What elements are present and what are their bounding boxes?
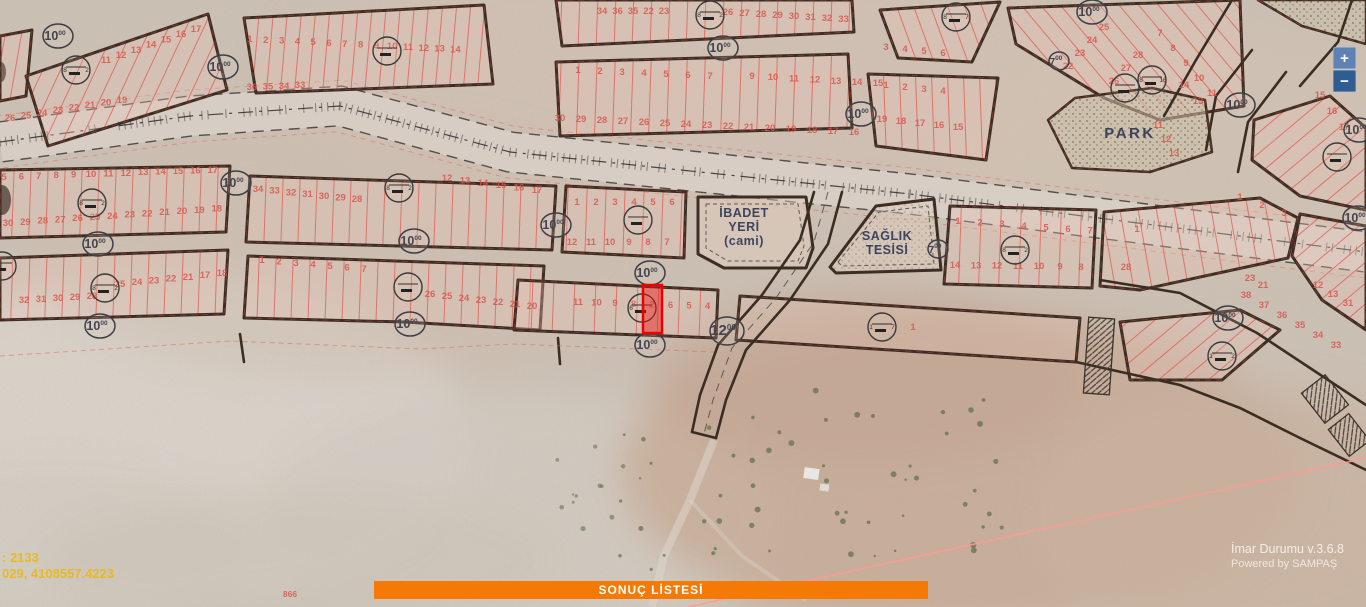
svg-text:24: 24 [37, 108, 48, 119]
powered-by-text: Powered by SAMPAŞ [1231, 557, 1344, 571]
svg-text:5: 5 [1, 172, 7, 183]
svg-text:1: 1 [1209, 353, 1213, 360]
svg-text:5: 5 [311, 37, 317, 48]
svg-text:2: 2 [593, 197, 598, 208]
svg-text:28: 28 [756, 9, 767, 20]
svg-text:31: 31 [36, 294, 47, 305]
svg-text:10: 10 [591, 298, 602, 309]
svg-text:1: 1 [1237, 192, 1243, 203]
svg-text:16: 16 [934, 120, 945, 131]
svg-text:25: 25 [442, 291, 453, 302]
svg-text:23: 23 [476, 295, 487, 306]
svg-text:5: 5 [650, 197, 656, 208]
svg-text:38: 38 [1241, 290, 1252, 301]
svg-text:34: 34 [1313, 330, 1324, 341]
svg-text:10: 10 [768, 72, 779, 83]
svg-text:13: 13 [831, 76, 842, 87]
svg-text:30: 30 [555, 113, 566, 124]
svg-text:17: 17 [208, 165, 219, 176]
svg-text:8: 8 [92, 285, 96, 292]
svg-text:8: 8 [943, 14, 947, 21]
svg-text:16: 16 [849, 127, 860, 138]
road-width-marker: 1000 [83, 232, 113, 256]
svg-text:29: 29 [576, 114, 587, 125]
svg-text:24: 24 [1087, 35, 1098, 46]
svg-text:12: 12 [992, 261, 1003, 272]
svg-text:33: 33 [838, 14, 849, 25]
road-width-marker: 1000 [221, 171, 251, 195]
svg-text:35: 35 [1295, 320, 1306, 331]
block-symbol: 82 [385, 174, 413, 202]
svg-text:9: 9 [612, 298, 617, 309]
svg-text:16: 16 [1159, 77, 1167, 84]
svg-text:31: 31 [302, 189, 313, 200]
svg-text:37: 37 [1259, 300, 1270, 311]
svg-text:6: 6 [668, 300, 673, 311]
road-width-marker: 1000 [1343, 206, 1366, 230]
svg-text:30: 30 [3, 218, 14, 229]
svg-text:3: 3 [612, 197, 617, 208]
svg-text:14: 14 [1179, 80, 1190, 91]
block-symbol: 82 [62, 56, 90, 84]
svg-text:11: 11 [789, 73, 800, 84]
svg-text:34: 34 [597, 6, 608, 17]
svg-text:6: 6 [344, 263, 349, 274]
svg-text:8: 8 [1002, 247, 1006, 254]
block-symbol: 82 [78, 189, 106, 217]
svg-text:30: 30 [53, 293, 64, 304]
svg-text:8: 8 [645, 237, 650, 248]
svg-text:8: 8 [63, 67, 67, 74]
svg-text:8: 8 [1170, 43, 1175, 54]
svg-text:21: 21 [744, 122, 755, 133]
road-width-marker: 700 [1049, 52, 1069, 70]
svg-text:16: 16 [1327, 106, 1338, 117]
road-width-marker: 1000 [43, 24, 73, 48]
block-symbol: 17 [868, 313, 896, 341]
road-width-marker: 1000 [635, 333, 665, 357]
svg-text:12: 12 [1313, 280, 1324, 291]
block-symbol: 82 [1001, 236, 1029, 264]
svg-text:29: 29 [772, 10, 783, 21]
svg-text:11: 11 [403, 42, 414, 53]
svg-text:36: 36 [247, 82, 258, 93]
svg-text:9: 9 [71, 170, 76, 181]
highlighted-parcel[interactable] [643, 285, 662, 333]
svg-text:4: 4 [310, 260, 316, 271]
svg-text:21: 21 [1258, 280, 1269, 291]
coordinate-line-2: 029, 4108557.4223 [2, 566, 114, 582]
block-symbol [624, 206, 652, 234]
svg-text:14: 14 [450, 44, 461, 55]
svg-text:23: 23 [149, 275, 160, 286]
svg-text:36: 36 [612, 6, 623, 17]
block-symbol [394, 273, 422, 301]
svg-text:2: 2 [902, 82, 907, 93]
svg-text:11: 11 [586, 237, 597, 248]
zoom-control: + − [1333, 47, 1356, 92]
road-width-marker: 1000 [395, 312, 425, 336]
svg-text:24: 24 [132, 277, 143, 288]
svg-text:24: 24 [459, 293, 470, 304]
svg-text:20: 20 [765, 123, 776, 134]
svg-text:7: 7 [1157, 28, 1162, 39]
svg-text:6: 6 [629, 305, 633, 312]
block-symbol: 87 [942, 3, 970, 31]
svg-text:1: 1 [574, 197, 580, 208]
svg-text:30: 30 [789, 11, 800, 22]
coordinate-line-1: : 2133 [2, 550, 114, 566]
svg-text:3: 3 [619, 67, 624, 78]
svg-text:29: 29 [70, 292, 81, 303]
svg-text:20: 20 [177, 206, 188, 217]
svg-text:866: 866 [283, 589, 297, 599]
svg-text:11: 11 [103, 168, 114, 179]
svg-text:20: 20 [101, 97, 112, 108]
block-symbol [1323, 143, 1351, 171]
svg-text:23: 23 [1245, 273, 1256, 284]
svg-text:15: 15 [873, 78, 884, 89]
svg-text:17: 17 [828, 126, 839, 137]
svg-text:1: 1 [259, 255, 265, 266]
svg-text:8: 8 [1078, 262, 1083, 273]
road-width-marker: 1000 [1225, 93, 1255, 117]
svg-text:12: 12 [567, 237, 578, 248]
road-width-marker: 1000 [541, 213, 571, 237]
svg-text:21: 21 [510, 299, 521, 310]
svg-text:5: 5 [686, 301, 692, 312]
svg-text:14: 14 [146, 40, 157, 51]
svg-text:19: 19 [877, 114, 888, 125]
map-viewport[interactable]: 5678910111213141516173029282726252423222… [0, 0, 1366, 607]
svg-text:3: 3 [883, 42, 888, 53]
svg-text:11: 11 [101, 55, 112, 66]
svg-text:26: 26 [5, 113, 16, 124]
svg-text:26: 26 [72, 213, 83, 224]
svg-text:2: 2 [1024, 247, 1028, 254]
svg-text:27: 27 [618, 116, 629, 127]
svg-text:2: 2 [101, 200, 105, 207]
svg-text:4: 4 [940, 86, 946, 97]
svg-text:12: 12 [1161, 134, 1172, 145]
svg-text:25: 25 [21, 110, 32, 121]
svg-text:35: 35 [263, 81, 274, 92]
block-symbol: 816 [1138, 66, 1167, 94]
svg-text:3: 3 [293, 258, 298, 269]
svg-text:28: 28 [1133, 50, 1144, 61]
svg-text:12: 12 [442, 173, 453, 184]
block-symbol: 82 [696, 1, 724, 29]
svg-text:22: 22 [166, 274, 177, 285]
svg-text:2: 2 [263, 35, 268, 46]
svg-text:16: 16 [190, 165, 201, 176]
svg-text:4: 4 [295, 36, 301, 47]
result-list-button[interactable]: SONUÇ LİSTESİ [374, 581, 928, 599]
svg-text:30: 30 [319, 191, 330, 202]
svg-text:16: 16 [514, 183, 525, 194]
svg-text:36: 36 [1277, 310, 1288, 321]
road-width-marker: 1000 [208, 55, 238, 79]
svg-text:21: 21 [85, 100, 96, 111]
svg-text:2: 2 [719, 12, 723, 19]
svg-text:9: 9 [1183, 58, 1188, 69]
svg-text:21: 21 [183, 272, 194, 283]
road-width-marker: 1000 [1077, 0, 1107, 24]
svg-text:5: 5 [327, 261, 333, 272]
svg-text:TESİSİ: TESİSİ [866, 242, 909, 257]
svg-text:34: 34 [279, 81, 290, 92]
svg-text:13: 13 [1193, 96, 1204, 107]
app-credits: İmar Durumu v.3.6.8 Powered by SAMPAŞ [1231, 541, 1344, 571]
svg-text:PARK: PARK [1104, 125, 1155, 142]
svg-text:27: 27 [55, 214, 66, 225]
svg-text:9: 9 [626, 237, 631, 248]
svg-text:22: 22 [142, 208, 153, 219]
svg-text:17: 17 [915, 118, 926, 129]
block-symbol: 12 [1208, 342, 1236, 370]
svg-text:23: 23 [702, 120, 713, 131]
svg-text:32: 32 [19, 295, 30, 306]
svg-text:6: 6 [940, 48, 945, 59]
road-width-marker: 1000 [1213, 306, 1243, 330]
road-width-marker: 1000 [85, 314, 115, 338]
svg-text:23: 23 [53, 105, 64, 116]
svg-text:4: 4 [902, 44, 908, 55]
svg-text:8: 8 [1139, 77, 1143, 84]
svg-text:6: 6 [1065, 224, 1070, 235]
block-symbol: 82 [91, 274, 119, 302]
svg-text:YERİ: YERİ [728, 219, 759, 234]
svg-text:14: 14 [478, 178, 489, 189]
block-symbol [373, 37, 401, 65]
zoom-out-button[interactable]: − [1333, 70, 1356, 92]
svg-text:28: 28 [597, 115, 608, 126]
svg-text:İBADET: İBADET [719, 205, 769, 220]
svg-text:1: 1 [869, 324, 873, 331]
svg-text:31: 31 [805, 12, 816, 23]
svg-text:28: 28 [352, 194, 363, 205]
svg-text:13: 13 [138, 167, 149, 178]
svg-text:11: 11 [1207, 88, 1218, 99]
svg-text:27: 27 [739, 8, 750, 19]
road-width-marker: 1200 [710, 317, 744, 345]
svg-text:1: 1 [955, 216, 961, 227]
svg-text:7: 7 [891, 324, 895, 331]
svg-text:3: 3 [279, 36, 284, 47]
svg-text:3: 3 [1281, 208, 1286, 219]
svg-text:18: 18 [217, 268, 228, 279]
road-width-marker: 1000 [1344, 118, 1366, 142]
svg-text:9: 9 [749, 71, 754, 82]
svg-text:13: 13 [434, 44, 445, 55]
svg-text:13: 13 [971, 260, 982, 271]
svg-text:20: 20 [527, 301, 538, 312]
svg-text:25: 25 [660, 118, 671, 129]
svg-text:10: 10 [1034, 261, 1045, 272]
svg-text:10: 10 [86, 169, 97, 180]
svg-text:27: 27 [1121, 63, 1132, 74]
svg-text:4: 4 [1021, 221, 1027, 232]
svg-text:13: 13 [1328, 289, 1339, 300]
svg-text:23: 23 [125, 210, 136, 221]
svg-text:3: 3 [921, 84, 926, 95]
svg-text:13: 13 [460, 175, 471, 186]
svg-text:19: 19 [117, 95, 128, 106]
svg-text:13: 13 [131, 45, 142, 56]
svg-text:2: 2 [1231, 353, 1235, 360]
road-width-marker: 1000 [846, 102, 876, 126]
svg-text:34: 34 [253, 184, 264, 195]
road-width-marker: 1000 [399, 229, 429, 253]
svg-text:4: 4 [705, 301, 711, 312]
svg-text:15: 15 [173, 166, 184, 177]
svg-text:14: 14 [155, 167, 166, 178]
svg-text:10: 10 [1194, 73, 1205, 84]
svg-text:1: 1 [247, 34, 253, 45]
svg-text:22: 22 [643, 6, 654, 17]
svg-text:15: 15 [161, 34, 172, 45]
svg-text:7: 7 [361, 264, 366, 275]
svg-text:7: 7 [965, 14, 969, 21]
svg-text:8: 8 [79, 200, 83, 207]
svg-text:7: 7 [664, 237, 669, 248]
svg-text:6: 6 [19, 171, 24, 182]
svg-text:17: 17 [200, 270, 211, 281]
svg-text:18: 18 [212, 204, 223, 215]
svg-text:15: 15 [1315, 90, 1326, 101]
svg-text:22: 22 [69, 103, 80, 114]
svg-text:5: 5 [1043, 222, 1049, 233]
svg-text:19: 19 [786, 124, 797, 135]
road-width-marker: 1000 [635, 261, 665, 285]
svg-text:7: 7 [707, 71, 712, 82]
svg-text:12: 12 [116, 50, 127, 61]
block-symbol [1111, 74, 1139, 102]
svg-text:2: 2 [114, 285, 118, 292]
health-label: SAĞLIKTESİSİ [862, 228, 912, 257]
svg-text:12: 12 [121, 168, 132, 179]
svg-text:2: 2 [977, 218, 982, 229]
svg-text:17: 17 [191, 24, 202, 35]
svg-text:18: 18 [807, 125, 818, 136]
zoom-in-button[interactable]: + [1333, 47, 1356, 69]
svg-text:2: 2 [597, 66, 602, 77]
svg-text:12: 12 [810, 75, 821, 86]
svg-text:8: 8 [54, 170, 59, 181]
svg-text:11: 11 [573, 297, 584, 308]
svg-text:2: 2 [408, 185, 412, 192]
svg-text:15: 15 [953, 122, 964, 133]
svg-text:1: 1 [575, 65, 581, 76]
svg-text:24: 24 [107, 211, 118, 222]
svg-text:32: 32 [286, 187, 297, 198]
park-label: PARK [1104, 125, 1155, 142]
svg-text:28: 28 [38, 216, 49, 227]
svg-text:6: 6 [669, 197, 674, 208]
svg-text:5: 5 [921, 46, 927, 57]
svg-text:18: 18 [896, 116, 907, 127]
svg-text:1: 1 [883, 80, 889, 91]
svg-text:23: 23 [1075, 48, 1086, 59]
road-width-marker: 700 [928, 240, 948, 258]
svg-text:35: 35 [628, 6, 639, 17]
svg-text:26: 26 [425, 289, 436, 300]
svg-text:14: 14 [950, 260, 961, 271]
svg-text:22: 22 [723, 121, 734, 132]
svg-text:8: 8 [386, 185, 390, 192]
zoning-map-canvas[interactable]: 5678910111213141516173029282726252423222… [0, 0, 1366, 607]
svg-text:5: 5 [663, 69, 669, 80]
svg-text:14: 14 [852, 77, 863, 88]
svg-text:7: 7 [36, 171, 41, 182]
svg-text:24: 24 [681, 119, 692, 130]
svg-text:16: 16 [176, 29, 187, 40]
svg-text:3: 3 [999, 219, 1004, 230]
svg-text:13: 13 [1169, 148, 1180, 159]
svg-text:32: 32 [822, 13, 833, 24]
svg-text:7: 7 [342, 39, 347, 50]
svg-text:21: 21 [159, 207, 170, 218]
svg-text:8: 8 [697, 12, 701, 19]
svg-text:2: 2 [276, 257, 281, 268]
svg-text:1: 1 [1134, 224, 1140, 235]
svg-text:17: 17 [532, 185, 543, 196]
svg-text:7: 7 [1087, 226, 1092, 237]
svg-text:33: 33 [295, 80, 306, 91]
svg-text:22: 22 [493, 297, 504, 308]
svg-text:28: 28 [1121, 262, 1132, 273]
svg-text:33: 33 [269, 186, 280, 197]
svg-text:2: 2 [1259, 200, 1264, 211]
app-version-text: İmar Durumu v.3.6.8 [1231, 541, 1344, 557]
svg-text:15: 15 [496, 180, 507, 191]
svg-text:(cami): (cami) [724, 234, 764, 248]
svg-text:12: 12 [419, 43, 430, 54]
svg-text:4: 4 [641, 68, 647, 79]
svg-text:23: 23 [659, 6, 670, 17]
svg-text:25: 25 [1099, 22, 1110, 33]
svg-text:31: 31 [1343, 298, 1354, 309]
svg-text:10: 10 [605, 237, 616, 248]
svg-text:33: 33 [1331, 340, 1342, 351]
svg-text:9: 9 [1057, 262, 1062, 273]
svg-text:19: 19 [194, 205, 205, 216]
svg-text:26: 26 [639, 117, 650, 128]
svg-text:2: 2 [85, 67, 89, 74]
svg-text:8: 8 [358, 40, 363, 51]
coordinate-readout: : 2133 029, 4108557.4223 [2, 550, 114, 582]
hatched-strip [1083, 317, 1114, 395]
svg-text:29: 29 [20, 217, 31, 228]
svg-text:SAĞLIK: SAĞLIK [862, 228, 912, 243]
road-width-marker: 1000 [708, 36, 738, 60]
svg-text:1: 1 [910, 322, 916, 333]
svg-text:29: 29 [335, 193, 346, 204]
svg-text:6: 6 [685, 70, 690, 81]
svg-text:6: 6 [326, 38, 331, 49]
